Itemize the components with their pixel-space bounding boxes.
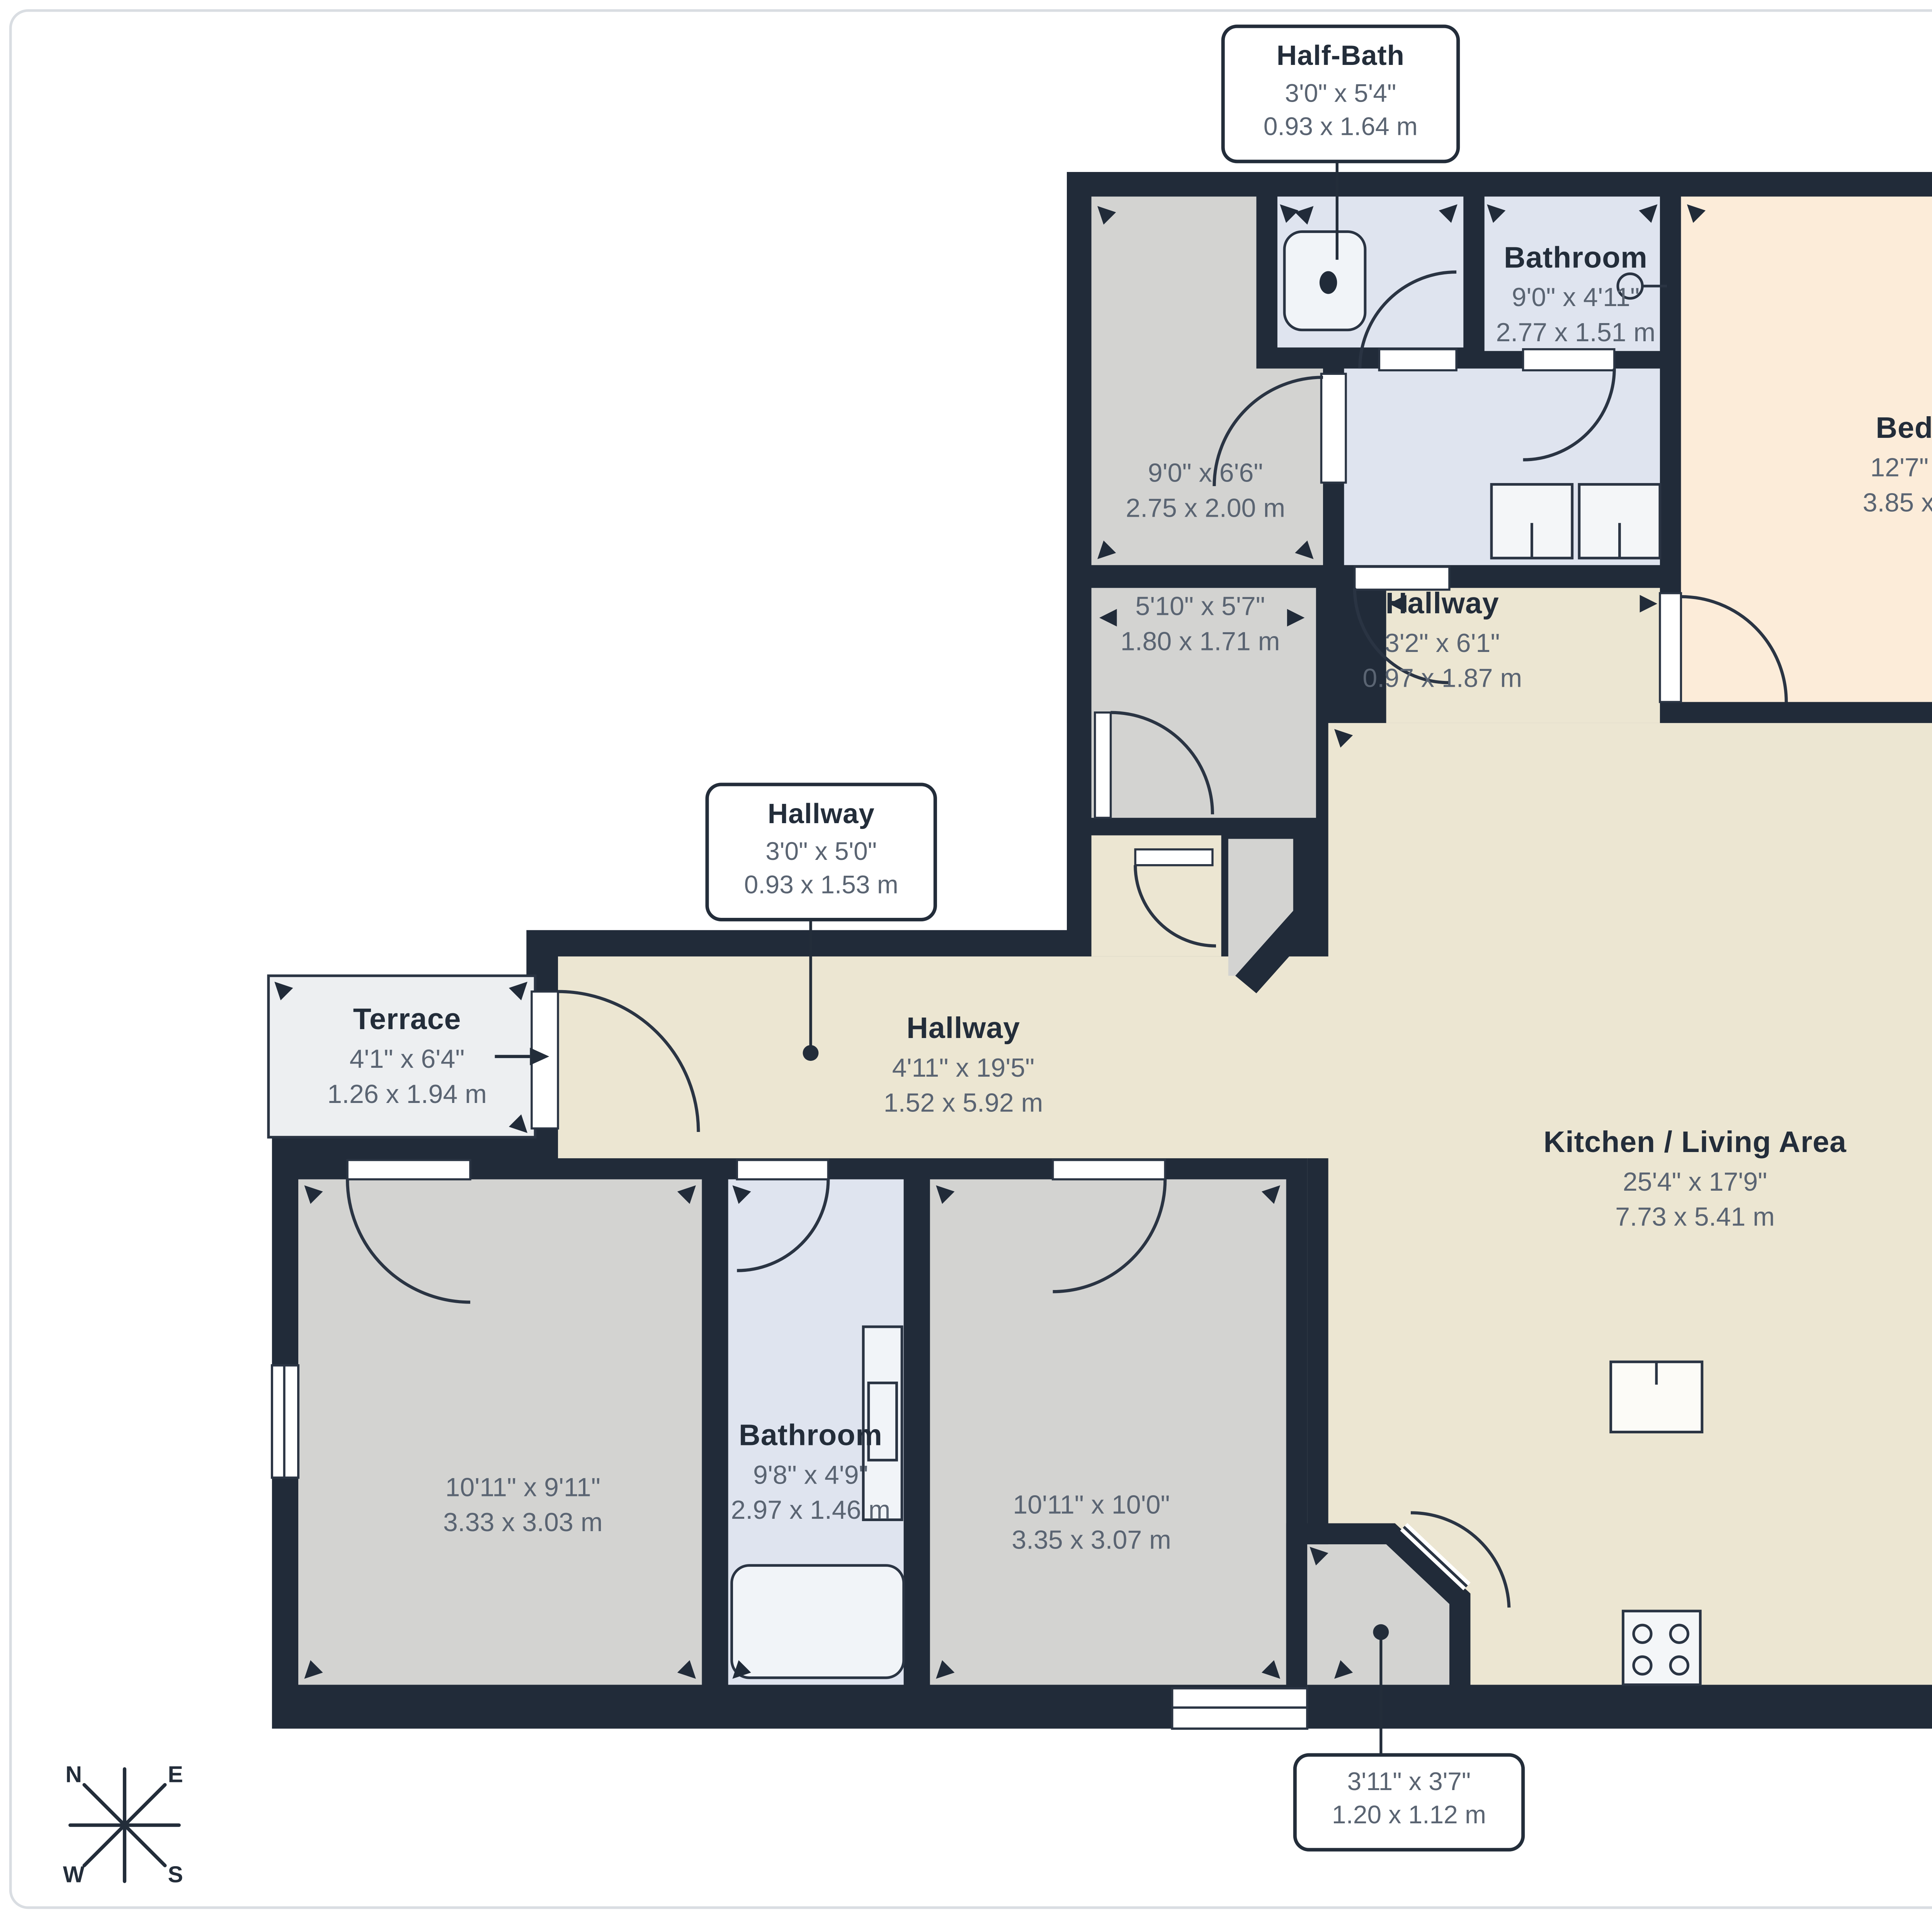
callout-hallway: Hallway 3'0" x 5'0" 0.93 x 1.53 m	[706, 783, 937, 922]
label-bathroom-top: Bathroom 9'0" x 4'11" 2.77 x 1.51 m	[1496, 240, 1656, 351]
half-bath-metric: 0.93 x 1.64 m	[1232, 113, 1449, 146]
stove	[1623, 1611, 1701, 1685]
room-fills	[269, 197, 1932, 1685]
kitchen-living-name: Kitchen / Living Area	[1544, 1124, 1847, 1162]
kitchen-living-imperial: 25'4" x 17'9"	[1544, 1166, 1847, 1201]
compass-icon	[70, 1769, 179, 1881]
hallway-callout-name: Hallway	[716, 797, 927, 834]
hallway-small-imperial: 3'2" x 6'1"	[1362, 628, 1522, 662]
compass-e: E	[168, 1761, 183, 1787]
bathtub	[732, 1566, 904, 1678]
label-storage-a: 9'0" x 6'6" 2.75 x 2.00 m	[1126, 457, 1285, 526]
label-storage-b: 5'10" x 5'7" 1.80 x 1.71 m	[1121, 591, 1280, 659]
bathroom-top-metric: 2.77 x 1.51 m	[1496, 316, 1656, 351]
vestibule-imperial: 3'11" x 3'7"	[1304, 1767, 1514, 1801]
bedroom-bl-metric: 3.33 x 3.03 m	[443, 1506, 603, 1540]
storage-b-imperial: 5'10" x 5'7"	[1121, 591, 1280, 625]
compass-s: S	[168, 1861, 183, 1887]
room-bottom-right-fill	[930, 1179, 1286, 1685]
hallway-main-imperial: 4'11" x 19'5"	[884, 1052, 1043, 1087]
half-bath-imperial: 3'0" x 5'4"	[1232, 79, 1449, 113]
compass-n: N	[65, 1761, 82, 1787]
bedroom-br-imperial: 10'11" x 10'0"	[1012, 1489, 1171, 1523]
label-bedroom-bottom-right: 10'11" x 10'0" 3.35 x 3.07 m	[1012, 1489, 1171, 1557]
terrace-left-name: Terrace	[327, 1001, 487, 1040]
hallway-main-metric: 1.52 x 5.92 m	[884, 1086, 1043, 1121]
label-hallway-main: Hallway 4'11" x 19'5" 1.52 x 5.92 m	[884, 1010, 1043, 1121]
hallway-small-metric: 0.97 x 1.87 m	[1362, 662, 1522, 696]
storage-a-metric: 2.75 x 2.00 m	[1126, 492, 1285, 526]
hallway-callout-imperial: 3'0" x 5'0"	[716, 837, 927, 871]
callout-half-bath: Half-Bath 3'0" x 5'4" 0.93 x 1.64 m	[1221, 25, 1460, 164]
terrace-left-metric: 1.26 x 1.94 m	[327, 1077, 487, 1112]
hallway-main-name: Hallway	[884, 1010, 1043, 1048]
callout-entry-vestibule: 3'11" x 3'7" 1.20 x 1.12 m	[1293, 1753, 1525, 1852]
bathroom-bottom-name: Bathroom	[731, 1417, 891, 1456]
bedroom-metric: 3.85 x 3.98 m	[1863, 486, 1932, 521]
room-bottom-left-fill	[298, 1179, 702, 1685]
label-bedroom: Bedroom 12'7" x 13'0" 3.85 x 3.98 m	[1863, 410, 1932, 521]
label-terrace-left: Terrace 4'1" x 6'4" 1.26 x 1.94 m	[327, 1001, 487, 1112]
bedroom-imperial: 12'7" x 13'0"	[1863, 452, 1932, 487]
bathroom-top-imperial: 9'0" x 4'11"	[1496, 282, 1656, 316]
label-hallway-small: Hallway 3'2" x 6'1" 0.97 x 1.87 m	[1362, 585, 1522, 696]
storage-a-imperial: 9'0" x 6'6"	[1126, 457, 1285, 492]
bathroom-bottom-metric: 2.97 x 1.46 m	[731, 1494, 891, 1528]
label-bathroom-bottom: Bathroom 9'8" x 4'9" 2.97 x 1.46 m	[731, 1417, 891, 1528]
bedroom-name: Bedroom	[1863, 410, 1932, 448]
kitchen-living-metric: 7.73 x 5.41 m	[1544, 1200, 1847, 1235]
bathroom-bottom-imperial: 9'8" x 4'9"	[731, 1459, 891, 1494]
label-bedroom-bottom-left: 10'11" x 9'11" 3.33 x 3.03 m	[443, 1472, 603, 1540]
storage-b-metric: 1.80 x 1.71 m	[1121, 625, 1280, 659]
terrace-left-imperial: 4'1" x 6'4"	[327, 1043, 487, 1078]
vestibule-metric: 1.20 x 1.12 m	[1304, 1801, 1514, 1835]
bedroom-bl-imperial: 10'11" x 9'11"	[443, 1472, 603, 1506]
floorplan-page: 9'0" x 6'6" 2.75 x 2.00 m 5'10" x 5'7" 1…	[0, 0, 1932, 1918]
label-kitchen-living: Kitchen / Living Area 25'4" x 17'9" 7.73…	[1544, 1124, 1847, 1235]
faucet-halfbath	[1320, 271, 1337, 294]
hallway-callout-metric: 0.93 x 1.53 m	[716, 871, 927, 904]
compass-w: W	[63, 1861, 85, 1887]
bedroom-br-metric: 3.35 x 3.07 m	[1012, 1523, 1171, 1558]
half-bath-name: Half-Bath	[1232, 39, 1449, 76]
hallway-small-name: Hallway	[1362, 585, 1522, 624]
bathroom-top-name: Bathroom	[1496, 240, 1656, 278]
